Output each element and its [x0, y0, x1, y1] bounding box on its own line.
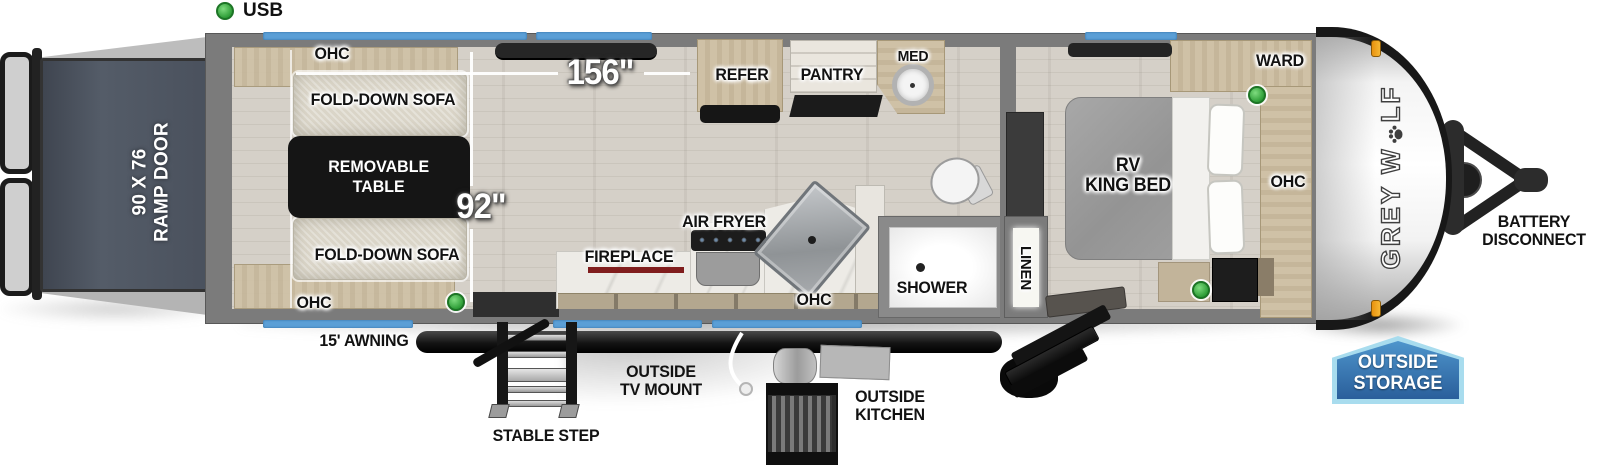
marker-light-bottom: [1371, 300, 1381, 317]
ramp-door-text: RAMP DOOR: [152, 72, 174, 292]
bed-pillow-1: [1207, 103, 1245, 176]
stable-step-foot-right: [558, 404, 579, 418]
window-top-bedroom: [1085, 32, 1177, 40]
fold-down-sofa-top-label: FOLD-DOWN SOFA: [311, 91, 456, 109]
oven-hood: [696, 252, 760, 286]
dim-line-156-left: [296, 72, 558, 75]
dim-line-92-bottom: [470, 229, 473, 302]
shower-drain: [916, 263, 925, 272]
fireplace-label: FIREPLACE: [585, 248, 674, 266]
paw-icon: [1381, 124, 1401, 144]
ramp-door-size: 90 X 76: [130, 72, 152, 292]
dim-156-label: 156": [567, 53, 634, 93]
cooktop-knobs: [695, 235, 763, 246]
ramp-rail-top: [0, 52, 34, 174]
dim-line-92-top: [470, 52, 473, 186]
kitchen-ohc-label: OHC: [797, 291, 832, 309]
usb-dot-bedroom-bottom: [1192, 281, 1210, 299]
outside-storage-label: OUTSIDE STORAGE: [1354, 353, 1443, 395]
bedroom-tv-cabinet: [1006, 112, 1044, 220]
battery-disconnect-label: BATTERY DISCONNECT: [1482, 213, 1586, 249]
fold-down-sofa-bottom-label: FOLD-DOWN SOFA: [315, 246, 460, 264]
window-top-garage: [263, 32, 527, 40]
window-top-kitchen: [536, 32, 652, 40]
dim-line-156-right: [644, 72, 690, 75]
stable-step-rung-3: [500, 368, 574, 382]
outside-kitchen-label: OUTSIDE KITCHEN: [855, 388, 925, 424]
bath-sink-drain: [910, 83, 915, 88]
bed-label: RV KING BED: [1085, 156, 1171, 196]
bedroom-ohc-inset: [1258, 258, 1274, 296]
ramp-rail-bottom: [0, 178, 34, 296]
pantry-shelf: [789, 95, 882, 117]
griddle-grates: [772, 396, 832, 452]
bedroom-ohc-label: OHC: [1271, 173, 1306, 191]
stable-step-rail-right: [566, 322, 577, 412]
pantry-label: PANTRY: [801, 66, 864, 84]
refrigerator-base: [700, 105, 780, 123]
garage-ohc-bottom-label: OHC: [297, 294, 332, 312]
ramp-door: [40, 58, 212, 292]
garage-ohc-top-label: OHC: [315, 45, 350, 63]
refer-label: REFER: [715, 66, 768, 84]
brand-logo: GREY W LF: [1376, 85, 1407, 270]
usb-dot-garage: [447, 293, 465, 311]
outside-kitchen-box: [819, 345, 890, 380]
med-label: MED: [898, 49, 929, 65]
kitchen-sink-drain: [808, 236, 816, 244]
window-bottom-garage: [263, 320, 413, 328]
stable-step-rung-4: [500, 386, 574, 393]
linen-label: LINEN: [1017, 246, 1033, 290]
stable-step-label: STABLE STEP: [493, 427, 600, 445]
stable-step-rung-2: [500, 351, 574, 358]
bedroom-dresser: [1212, 258, 1258, 302]
ward-label: WARD: [1256, 52, 1304, 70]
brand-text-1: GREY W: [1376, 146, 1407, 269]
ramp-door-label: 90 X 76 RAMP DOOR: [130, 72, 175, 292]
stepwell-mat: [473, 292, 559, 317]
stable-step-foot-left: [488, 404, 509, 418]
removable-table-label: REMOVABLE TABLE: [329, 157, 430, 196]
brand-text-2: LF: [1376, 85, 1407, 123]
front-cap-shading: [1316, 37, 1376, 320]
usb-legend-label: USB: [243, 0, 283, 22]
shower-label: SHOWER: [897, 279, 968, 297]
marker-light-top: [1371, 40, 1381, 57]
bed-pillow-2: [1207, 179, 1246, 254]
dim-92-label: 92": [456, 187, 505, 227]
outside-tv-mount-label: OUTSIDE TV MOUNT: [620, 363, 702, 399]
fireplace-glow: [588, 267, 684, 273]
awning-label: 15' AWNING: [319, 332, 408, 350]
griddle-cap-top: [766, 383, 838, 395]
usb-legend-dot: [216, 2, 234, 20]
removable-table: REMOVABLE TABLE: [288, 136, 470, 218]
air-fryer-label: AIR FRYER: [682, 213, 766, 231]
bed-sheet-band: [1172, 97, 1210, 260]
griddle-cap-bottom: [766, 452, 838, 465]
bedroom-tv: [1068, 43, 1172, 57]
stable-step-rail-left: [497, 322, 508, 412]
usb-dot-bedroom-top: [1248, 86, 1266, 104]
outside-kitchen-tank: [773, 348, 817, 384]
floorplan-diagram: USB 90 X 76 RAMP DOOR REMOVABLE TABLE OH…: [0, 0, 1600, 475]
